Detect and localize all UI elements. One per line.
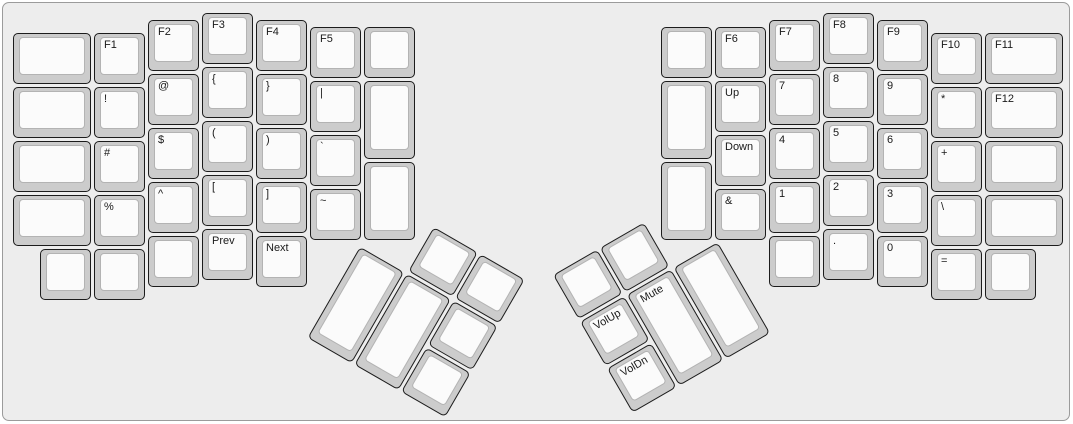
key-blank[interactable] (769, 236, 820, 287)
key-label: ] (266, 187, 269, 202)
key-f10[interactable]: F10 (931, 33, 982, 84)
key-f6[interactable]: F6 (715, 27, 766, 78)
keycap-top: VolDn (614, 349, 667, 401)
keycap-top (464, 260, 517, 312)
keycap-top: | (316, 85, 355, 123)
keycap-top (667, 85, 706, 150)
key-next[interactable]: Next (256, 236, 307, 287)
key-brace-open[interactable]: { (202, 67, 253, 118)
keycap-top (154, 240, 193, 278)
key-label: 8 (833, 72, 839, 87)
key-7[interactable]: 7 (769, 74, 820, 125)
key-label: F10 (941, 38, 960, 53)
key-f3[interactable]: F3 (202, 13, 253, 64)
keycap-top: F2 (154, 24, 193, 62)
key-1[interactable]: 1 (769, 182, 820, 233)
keycap-top: 1 (775, 186, 814, 224)
keyboard-board: F1!#%F2@$^F3{([F4})]F5|`~PrevNextF6UpDow… (2, 2, 1070, 421)
key-label: F12 (995, 92, 1014, 107)
keycap-top (991, 253, 1030, 291)
key-pipe[interactable]: | (310, 81, 361, 132)
key-equals[interactable]: = (931, 249, 982, 300)
key-label: Down (725, 140, 753, 155)
key-label: & (725, 194, 732, 209)
keycap-top: 5 (829, 125, 868, 163)
keycap-top: F11 (991, 37, 1057, 75)
key-blank[interactable] (661, 27, 712, 78)
key-4[interactable]: 4 (769, 128, 820, 179)
keycap-top: % (100, 199, 139, 237)
keycap-top: Prev (208, 233, 247, 271)
key-blank[interactable] (13, 195, 91, 246)
key-label: % (104, 200, 114, 215)
keycap-top: F4 (262, 24, 301, 62)
key-up[interactable]: Up (715, 81, 766, 132)
key-label: ) (266, 133, 270, 148)
keycap-top: F9 (883, 24, 922, 62)
key-backslash[interactable]: \ (931, 195, 982, 246)
keycap-top (19, 37, 85, 75)
keycap-top (560, 256, 613, 308)
key-blank[interactable] (661, 162, 712, 240)
key-6[interactable]: 6 (877, 128, 928, 179)
key-label: VolDn (618, 353, 651, 381)
keycap-top: * (937, 91, 976, 129)
key-label: $ (158, 133, 164, 148)
key-label: F9 (887, 25, 900, 40)
key-prev[interactable]: Prev (202, 229, 253, 280)
keycap-top: $ (154, 132, 193, 170)
keycap-top (437, 307, 490, 359)
key-blank[interactable] (40, 249, 91, 300)
key-label: 9 (887, 79, 893, 94)
key-label: = (941, 254, 947, 269)
keycap-top: @ (154, 78, 193, 116)
keycap-top: F1 (100, 37, 139, 75)
key-label: Prev (212, 234, 235, 249)
key-blank[interactable] (364, 27, 415, 78)
keycap-top: 2 (829, 179, 868, 217)
keycap-top: F6 (721, 31, 760, 69)
key-label: VolUp (591, 306, 624, 334)
key-label: ( (212, 126, 216, 141)
key-label: | (320, 86, 323, 101)
keycap-top (991, 145, 1057, 183)
key-blank[interactable] (13, 87, 91, 138)
key-label: 3 (887, 187, 893, 202)
key-label: 5 (833, 126, 839, 141)
key-label: } (266, 79, 270, 94)
keycap-top: ) (262, 132, 301, 170)
keycap-top: F8 (829, 17, 868, 55)
key-label: F6 (725, 32, 738, 47)
keycap-top: } (262, 78, 301, 116)
key-blank[interactable] (661, 81, 712, 159)
key-blank[interactable] (364, 81, 415, 159)
key-label: ^ (158, 187, 163, 202)
key-label: F5 (320, 32, 333, 47)
key-0[interactable]: 0 (877, 236, 928, 287)
key-f5[interactable]: F5 (310, 27, 361, 78)
keycap-top: F3 (208, 17, 247, 55)
key-label: * (941, 92, 945, 107)
keycap-top (606, 229, 659, 281)
key-blank[interactable] (13, 141, 91, 192)
keycap-top (667, 31, 706, 69)
key-label: + (941, 146, 947, 161)
key-at[interactable]: @ (148, 74, 199, 125)
key-blank[interactable] (148, 236, 199, 287)
key-label: F11 (995, 38, 1013, 53)
key-blank[interactable] (13, 33, 91, 84)
key-exclamation[interactable]: ! (94, 87, 145, 138)
key-label: Mute (637, 282, 666, 307)
keycap-top: F12 (991, 91, 1057, 129)
keycap-top: ` (316, 139, 355, 177)
keycap-top (775, 240, 814, 278)
key-label: 2 (833, 180, 839, 195)
key-asterisk[interactable]: * (931, 87, 982, 138)
key-blank[interactable] (94, 249, 145, 300)
key-bracket-close[interactable]: ] (256, 182, 307, 233)
keycap-top (19, 199, 85, 237)
key-label: F4 (266, 25, 279, 40)
key-f2[interactable]: F2 (148, 20, 199, 71)
key-f1[interactable]: F1 (94, 33, 145, 84)
key-label: # (104, 146, 110, 161)
key-f4[interactable]: F4 (256, 20, 307, 71)
key-label: F2 (158, 25, 171, 40)
keycap-top: = (937, 253, 976, 291)
key-label: F8 (833, 18, 846, 33)
key-bracket-open[interactable]: [ (202, 175, 253, 226)
key-dollar[interactable]: $ (148, 128, 199, 179)
key-label: { (212, 72, 216, 87)
keycap-top: F5 (316, 31, 355, 69)
keycap-top: ^ (154, 186, 193, 224)
keycap-top: Next (262, 240, 301, 278)
keycap-top: 3 (883, 186, 922, 224)
keycap-top: # (100, 145, 139, 183)
key-paren-close[interactable]: ) (256, 128, 307, 179)
key-blank[interactable] (985, 249, 1036, 300)
keycap-top (667, 166, 706, 231)
key-f9[interactable]: F9 (877, 20, 928, 71)
keycap-top: Down (721, 139, 760, 177)
keycap-top: 9 (883, 78, 922, 116)
key-label: ~ (320, 194, 326, 209)
key-label: F1 (104, 38, 117, 53)
key-f11[interactable]: F11 (985, 33, 1063, 84)
key-label: 1 (779, 187, 785, 202)
key-5[interactable]: 5 (823, 121, 874, 172)
key-label: Up (725, 86, 739, 101)
key-tilde[interactable]: ~ (310, 189, 361, 240)
key-hash[interactable]: # (94, 141, 145, 192)
key-label: . (833, 234, 836, 249)
key-caret[interactable]: ^ (148, 182, 199, 233)
keycap-top (19, 145, 85, 183)
key-9[interactable]: 9 (877, 74, 928, 125)
key-2[interactable]: 2 (823, 175, 874, 226)
key-label: 0 (887, 241, 893, 256)
key-label: F7 (779, 25, 792, 40)
key-label: ! (104, 92, 107, 107)
key-label: 7 (779, 79, 785, 94)
keycap-top (370, 31, 409, 69)
key-label: 4 (779, 133, 785, 148)
keycap-top (418, 233, 471, 285)
keycap-top (410, 353, 463, 405)
keycap-top (370, 166, 409, 231)
key-percent[interactable]: % (94, 195, 145, 246)
keycap-top: ! (100, 91, 139, 129)
keycap-top (19, 91, 85, 129)
keycap-top: + (937, 145, 976, 183)
keycap-top: & (721, 193, 760, 231)
key-f7[interactable]: F7 (769, 20, 820, 71)
keycap-top: 6 (883, 132, 922, 170)
keycap-top: . (829, 233, 868, 271)
keycap-top: \ (937, 199, 976, 237)
key-3[interactable]: 3 (877, 182, 928, 233)
keycap-top: 7 (775, 78, 814, 116)
keycap-top: ~ (316, 193, 355, 231)
key-f12[interactable]: F12 (985, 87, 1063, 138)
keycap-top: 0 (883, 240, 922, 278)
key-f8[interactable]: F8 (823, 13, 874, 64)
keycap-top: [ (208, 179, 247, 217)
key-label: \ (941, 200, 944, 215)
key-paren-open[interactable]: ( (202, 121, 253, 172)
key-blank[interactable] (985, 141, 1063, 192)
key-label: 6 (887, 133, 893, 148)
key-period[interactable]: . (823, 229, 874, 280)
keycap-top: F7 (775, 24, 814, 62)
keycap-top: ] (262, 186, 301, 224)
keycap-top: 4 (775, 132, 814, 170)
key-blank[interactable] (364, 162, 415, 240)
keycap-top: 8 (829, 71, 868, 109)
key-down[interactable]: Down (715, 135, 766, 186)
key-label: ` (320, 140, 324, 155)
key-blank[interactable] (985, 195, 1063, 246)
key-plus[interactable]: + (931, 141, 982, 192)
key-ampersand[interactable]: & (715, 189, 766, 240)
keycap-top: { (208, 71, 247, 109)
keycap-top (991, 199, 1057, 237)
key-label: @ (158, 79, 169, 94)
keycap-top (46, 253, 85, 291)
keycap-top (100, 253, 139, 291)
keycap-top: ( (208, 125, 247, 163)
key-label: Next (266, 241, 289, 256)
keycap-top: VolUp (587, 303, 640, 355)
key-brace-close[interactable]: } (256, 74, 307, 125)
key-label: [ (212, 180, 215, 195)
key-8[interactable]: 8 (823, 67, 874, 118)
key-label: F3 (212, 18, 225, 33)
keycap-top: F10 (937, 37, 976, 75)
keycap-top: Up (721, 85, 760, 123)
key-backtick[interactable]: ` (310, 135, 361, 186)
keycap-top (370, 85, 409, 150)
